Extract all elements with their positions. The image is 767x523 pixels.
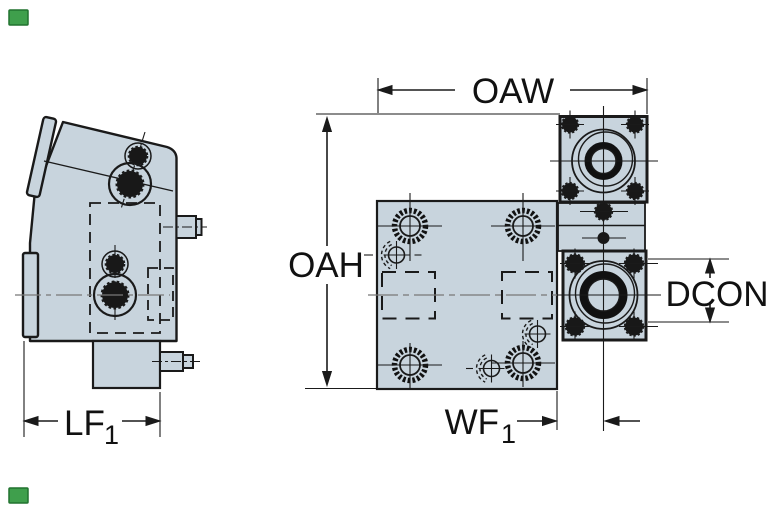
arrowhead-right bbox=[633, 86, 647, 95]
arrowhead-left bbox=[605, 417, 619, 426]
arrowhead-right bbox=[543, 417, 557, 426]
arrowhead-up bbox=[323, 118, 332, 132]
dimension-label-dcon: DCON bbox=[665, 275, 767, 314]
dimension-oaw: OAW bbox=[316, 72, 647, 114]
dimension-label-oaw: OAW bbox=[472, 72, 554, 111]
technical-drawing-canvas: OAW OAH DCON WF 1 LF 1 bbox=[0, 0, 767, 523]
dimension-dcon: DCON bbox=[648, 259, 767, 322]
arrowhead-left bbox=[24, 417, 38, 426]
dimension-label-lf: LF bbox=[64, 404, 105, 443]
green-corner-marker-bottom-left bbox=[9, 488, 28, 503]
dimension-label-wf: WF bbox=[445, 403, 499, 442]
arrowhead-left bbox=[378, 86, 392, 95]
green-corner-marker-top-left bbox=[9, 10, 28, 25]
side-view bbox=[15, 117, 207, 388]
dimension-oah: OAH bbox=[288, 118, 377, 389]
arrowhead-up bbox=[706, 259, 715, 273]
dimension-wf1: WF 1 bbox=[445, 391, 640, 449]
arrowhead-down bbox=[323, 372, 332, 386]
side-body bbox=[30, 122, 177, 341]
side-foot bbox=[93, 341, 160, 388]
arrowhead-right bbox=[146, 417, 160, 426]
dimension-label-oah: OAH bbox=[288, 246, 364, 285]
dimension-label-wf-subscript: 1 bbox=[501, 419, 516, 449]
clamping-unit-drawing: OAW OAH DCON WF 1 LF 1 bbox=[0, 0, 767, 523]
front-view bbox=[364, 106, 661, 431]
dimension-label-lf-subscript: 1 bbox=[104, 420, 119, 450]
